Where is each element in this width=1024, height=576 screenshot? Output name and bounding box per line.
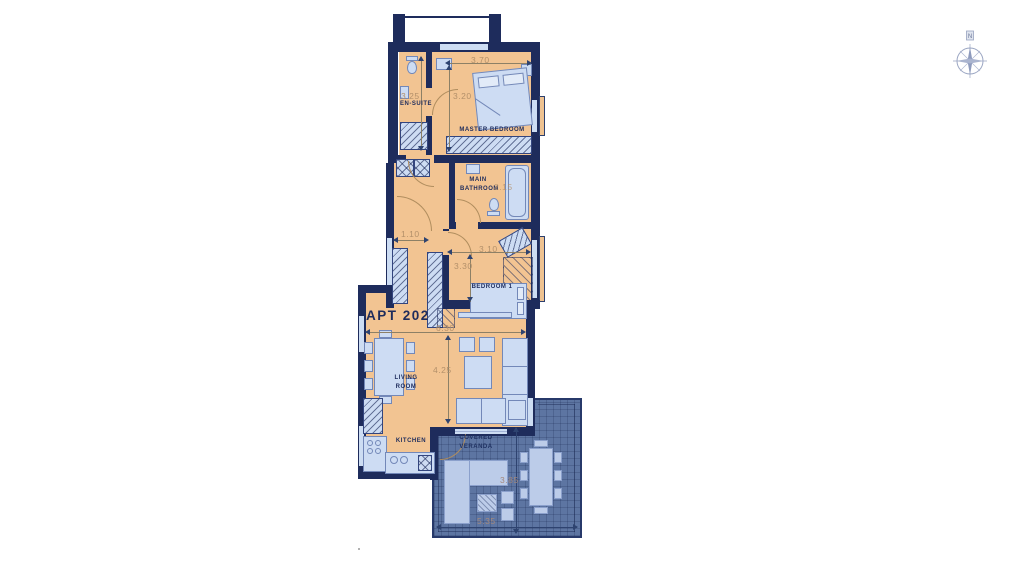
outdoor-chair	[554, 470, 562, 481]
room-label-bedroom-1: BEDROOM 1	[462, 283, 522, 292]
sofa-cushion-line	[481, 399, 482, 423]
armchair	[479, 337, 495, 352]
hob-burner	[375, 440, 381, 446]
dining-chair	[364, 342, 373, 354]
side-table	[508, 400, 526, 420]
dimension-line	[449, 66, 450, 150]
dining-chair	[406, 342, 415, 354]
sink-icon	[466, 164, 480, 174]
floor-plan-canvas: APT 202 EN-SUITE 3.25 MASTER BEDROOM 3.7…	[0, 0, 1024, 576]
outdoor-chair	[554, 488, 562, 499]
dimension-line	[394, 240, 427, 241]
outdoor-chair	[520, 488, 528, 499]
dining-chair	[364, 378, 373, 390]
outdoor-chair	[534, 507, 548, 514]
dim-master-depth: 3.20	[453, 91, 472, 101]
dim-bedroom1-width: 3.10	[479, 244, 498, 254]
armchair	[459, 337, 475, 352]
veranda-railing	[438, 433, 439, 532]
master-bed	[472, 67, 533, 130]
outdoor-chair	[520, 470, 528, 481]
dining-chair	[364, 360, 373, 372]
appliance	[418, 455, 432, 471]
pillow	[502, 73, 524, 86]
duvet-fold	[475, 98, 500, 116]
outdoor-coffee-table	[477, 494, 497, 512]
dim-bathroom: 2.15	[494, 182, 513, 192]
outdoor-stool	[501, 491, 514, 504]
room-label-kitchen: KITCHEN	[386, 437, 436, 446]
dim-master-width: 3.70	[471, 55, 490, 65]
dim-living-width: 6.30	[436, 323, 455, 333]
toilet-icon	[407, 61, 417, 74]
window	[528, 398, 533, 426]
compass-north-label: N	[968, 34, 972, 40]
room-label-living-room: LIVING ROOM	[384, 374, 428, 392]
outdoor-dining-table	[529, 448, 553, 506]
hob-burner	[375, 448, 381, 454]
dining-chair	[406, 360, 415, 372]
outdoor-chair	[520, 452, 528, 463]
window-sill	[539, 236, 545, 302]
sofa-cushion-line	[503, 366, 527, 367]
veranda-railing	[438, 531, 575, 532]
apartment-title: APT 202	[366, 308, 430, 323]
sofa-cushion-line	[503, 394, 527, 395]
terrace-railing	[399, 16, 495, 18]
bathtub-inner	[508, 168, 526, 217]
dimension-line	[437, 527, 577, 528]
dim-bedroom1-depth: 3.30	[454, 261, 473, 271]
hob-burner	[367, 440, 373, 446]
page-mark	[358, 548, 360, 550]
kitchen-tall-unit	[363, 398, 383, 434]
wall	[449, 163, 455, 225]
outdoor-chair	[534, 440, 548, 447]
outdoor-chair	[554, 452, 562, 463]
hob-burner	[367, 448, 373, 454]
dimension-line	[448, 336, 449, 422]
room-label-en-suite: EN-SUITE	[396, 100, 436, 109]
room-label-main-bathroom: MAIN BATHROOM	[460, 176, 496, 194]
toilet-tank	[487, 211, 500, 216]
veranda-railing	[574, 404, 575, 532]
kitchen-sink	[390, 456, 398, 464]
dim-living-depth: 4.25	[433, 365, 452, 375]
hall-wardrobe	[392, 248, 408, 304]
sofa	[456, 398, 506, 424]
toilet-icon	[489, 198, 499, 211]
outdoor-sofa	[444, 460, 470, 524]
coffee-table	[464, 356, 492, 389]
room-label-master-bedroom: MASTER BEDROOM	[450, 126, 534, 135]
tv-console	[458, 312, 512, 318]
dim-hallway: 1.10	[401, 229, 420, 239]
dim-veranda-depth: 3.85	[500, 475, 519, 485]
room-label-covered-veranda: COVERED VERANDA	[448, 434, 504, 452]
dim-veranda-width: 5.35	[477, 516, 496, 526]
veranda-railing	[538, 404, 575, 405]
window-sill	[539, 96, 545, 136]
pillow	[478, 75, 500, 88]
compass-icon: N	[946, 28, 994, 84]
pillow	[517, 302, 524, 315]
bathtub	[505, 165, 529, 220]
kitchen-sink	[400, 456, 408, 464]
outdoor-stool	[501, 508, 514, 521]
dim-en-suite: 3.25	[401, 91, 420, 101]
window	[440, 44, 488, 50]
door-opening	[456, 222, 478, 229]
wardrobe	[446, 136, 532, 154]
